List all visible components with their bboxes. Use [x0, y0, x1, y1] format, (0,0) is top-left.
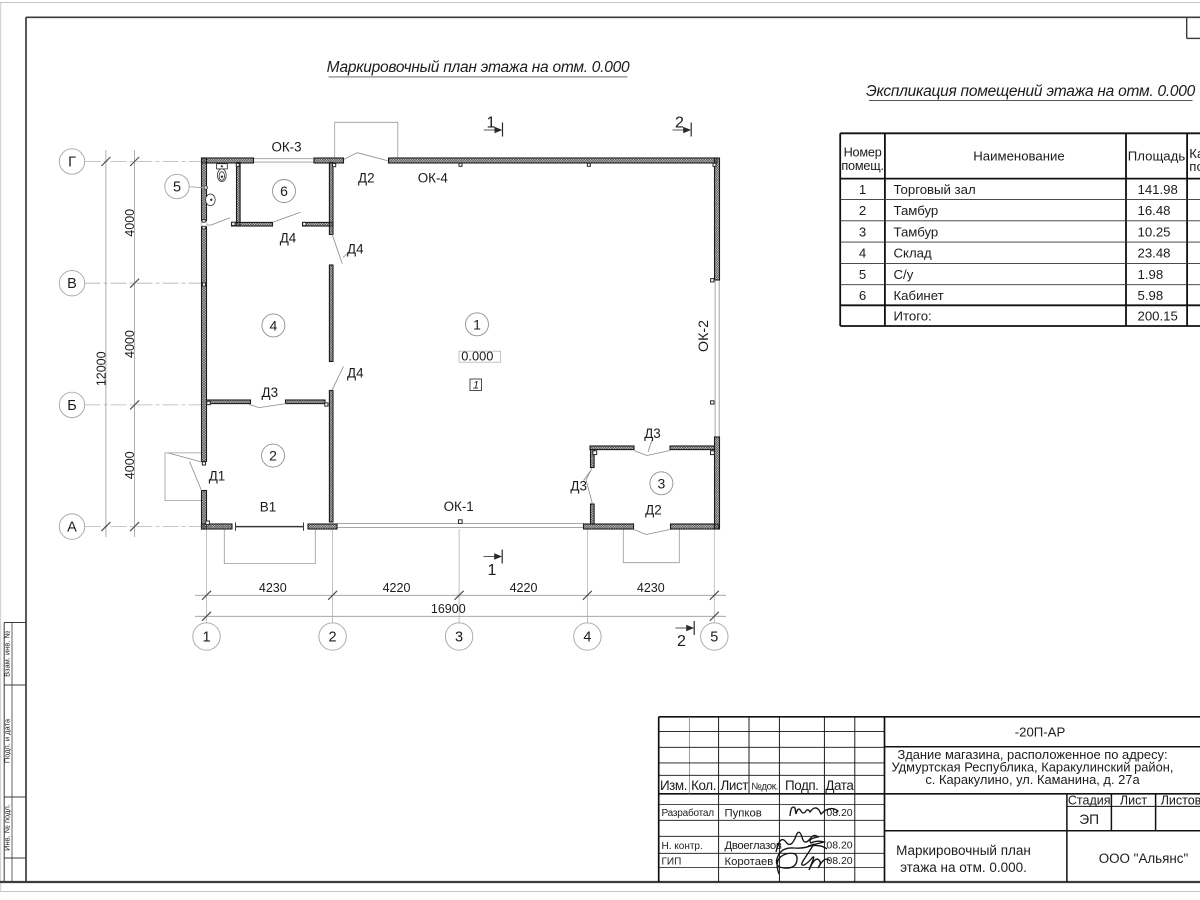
- svg-text:Маркировочный план: Маркировочный план: [896, 843, 1031, 858]
- svg-text:2: 2: [329, 630, 337, 646]
- svg-text:Д2: Д2: [358, 170, 375, 185]
- svg-text:5: 5: [173, 180, 181, 196]
- svg-text:ОК-1: ОК-1: [444, 499, 474, 514]
- svg-text:200.15: 200.15: [1138, 308, 1178, 323]
- svg-text:4: 4: [859, 246, 866, 261]
- svg-text:3: 3: [455, 630, 463, 646]
- svg-text:по: по: [1189, 159, 1200, 174]
- svg-text:-20П-АР: -20П-АР: [1015, 725, 1066, 740]
- svg-text:ОК-4: ОК-4: [418, 170, 449, 185]
- svg-text:Наименование: Наименование: [973, 148, 1064, 163]
- svg-text:Разработал: Разработал: [662, 807, 715, 819]
- svg-text:А: А: [67, 520, 77, 536]
- svg-text:Итого:: Итого:: [894, 308, 932, 323]
- svg-text:08.20: 08.20: [826, 840, 852, 852]
- svg-text:1: 1: [859, 182, 866, 197]
- svg-text:1: 1: [487, 115, 496, 132]
- svg-text:10.25: 10.25: [1138, 224, 1171, 239]
- svg-text:Д4: Д4: [347, 366, 364, 381]
- svg-text:3: 3: [859, 224, 866, 239]
- svg-text:Торговый зал: Торговый зал: [894, 182, 976, 197]
- svg-text:этажа на отм. 0.000.: этажа на отм. 0.000.: [900, 860, 1027, 875]
- svg-text:4000: 4000: [123, 209, 137, 237]
- svg-text:Инв. № подл.: Инв. № подл.: [3, 804, 12, 851]
- svg-text:Д3: Д3: [644, 426, 661, 441]
- svg-text:16900: 16900: [431, 602, 466, 616]
- svg-text:Д4: Д4: [347, 241, 364, 256]
- svg-text:Лист: Лист: [721, 778, 749, 793]
- svg-text:4: 4: [270, 317, 278, 333]
- svg-text:Д1: Д1: [209, 469, 226, 484]
- svg-text:Тамбур: Тамбур: [894, 203, 939, 218]
- svg-text:Дата: Дата: [825, 778, 854, 793]
- svg-text:Г: Г: [68, 155, 76, 171]
- svg-text:5: 5: [859, 267, 866, 282]
- svg-text:ЭП: ЭП: [1079, 812, 1099, 827]
- svg-text:4220: 4220: [510, 581, 538, 595]
- svg-text:Д3: Д3: [570, 478, 587, 493]
- svg-text:1: 1: [202, 630, 210, 646]
- svg-text:3: 3: [658, 475, 666, 491]
- svg-text:16.48: 16.48: [1138, 203, 1171, 218]
- svg-text:4: 4: [583, 630, 591, 646]
- svg-text:1: 1: [473, 316, 481, 332]
- svg-text:ГИП: ГИП: [662, 857, 682, 868]
- svg-text:В1: В1: [260, 500, 276, 515]
- svg-text:2: 2: [677, 633, 686, 650]
- svg-text:Лист: Лист: [1120, 793, 1147, 807]
- svg-text:ОК-2: ОК-2: [696, 320, 712, 352]
- svg-text:Пупков: Пупков: [725, 807, 762, 819]
- svg-text:5.98: 5.98: [1138, 288, 1164, 303]
- svg-text:4230: 4230: [259, 581, 287, 595]
- svg-text:08.20: 08.20: [826, 855, 852, 867]
- svg-text:С/у: С/у: [894, 267, 914, 282]
- svg-text:Маркировочный план этажа на от: Маркировочный план этажа на отм. 0.000: [327, 59, 630, 76]
- svg-text:0.000: 0.000: [461, 349, 493, 364]
- svg-text:В: В: [67, 276, 77, 292]
- svg-text:4220: 4220: [383, 581, 411, 595]
- svg-text:Кабинет: Кабинет: [894, 288, 944, 303]
- svg-text:1.98: 1.98: [1138, 267, 1164, 282]
- svg-text:4230: 4230: [637, 581, 665, 595]
- svg-text:Стадия: Стадия: [1068, 793, 1111, 807]
- svg-text:Изм.: Изм.: [660, 778, 687, 793]
- svg-text:Д4: Д4: [280, 231, 297, 246]
- svg-text:2: 2: [269, 448, 277, 464]
- svg-text:5: 5: [710, 630, 718, 646]
- svg-text:Н. контр.: Н. контр.: [662, 841, 703, 852]
- svg-text:Д2: Д2: [645, 503, 662, 518]
- svg-text:12000: 12000: [95, 351, 109, 386]
- svg-text:Подп.: Подп.: [785, 778, 819, 793]
- svg-text:с. Каракулино, ул. Каманина, д: с. Каракулино, ул. Каманина, д. 27а: [925, 772, 1140, 787]
- svg-text:4000: 4000: [123, 330, 137, 358]
- svg-text:23.48: 23.48: [1138, 246, 1171, 261]
- svg-text:№док.: №док.: [751, 782, 778, 793]
- svg-text:2: 2: [675, 115, 684, 132]
- svg-text:Номер: Номер: [844, 146, 882, 160]
- svg-text:Тамбур: Тамбур: [894, 224, 939, 239]
- svg-text:Двоеглазов: Двоеглазов: [725, 840, 782, 852]
- svg-text:Д3: Д3: [262, 385, 279, 400]
- svg-text:Склад: Склад: [894, 246, 932, 261]
- svg-text:Экспликация помещений этажа на: Экспликация помещений этажа на отм. 0.00…: [866, 83, 1196, 100]
- svg-text:Б: Б: [67, 398, 77, 414]
- svg-text:ОК-3: ОК-3: [271, 139, 301, 154]
- svg-text:Коротаев: Коротаев: [725, 856, 774, 868]
- svg-text:помещ.: помещ.: [841, 159, 883, 173]
- svg-text:1: 1: [473, 380, 479, 392]
- svg-text:1: 1: [488, 562, 497, 579]
- svg-text:141.98: 141.98: [1138, 182, 1178, 197]
- svg-text:Листов: Листов: [1161, 793, 1200, 807]
- svg-text:ООО "Альянс": ООО "Альянс": [1099, 851, 1189, 866]
- svg-text:2: 2: [859, 203, 866, 218]
- svg-text:Подп. и дата: Подп. и дата: [3, 718, 12, 763]
- svg-text:4000: 4000: [123, 451, 137, 479]
- svg-text:Взам. инв. №: Взам. инв. №: [3, 630, 12, 676]
- svg-text:Площадь: Площадь: [1128, 148, 1186, 163]
- svg-text:6: 6: [859, 288, 866, 303]
- svg-text:Кол.: Кол.: [691, 778, 716, 793]
- svg-text:6: 6: [280, 183, 288, 199]
